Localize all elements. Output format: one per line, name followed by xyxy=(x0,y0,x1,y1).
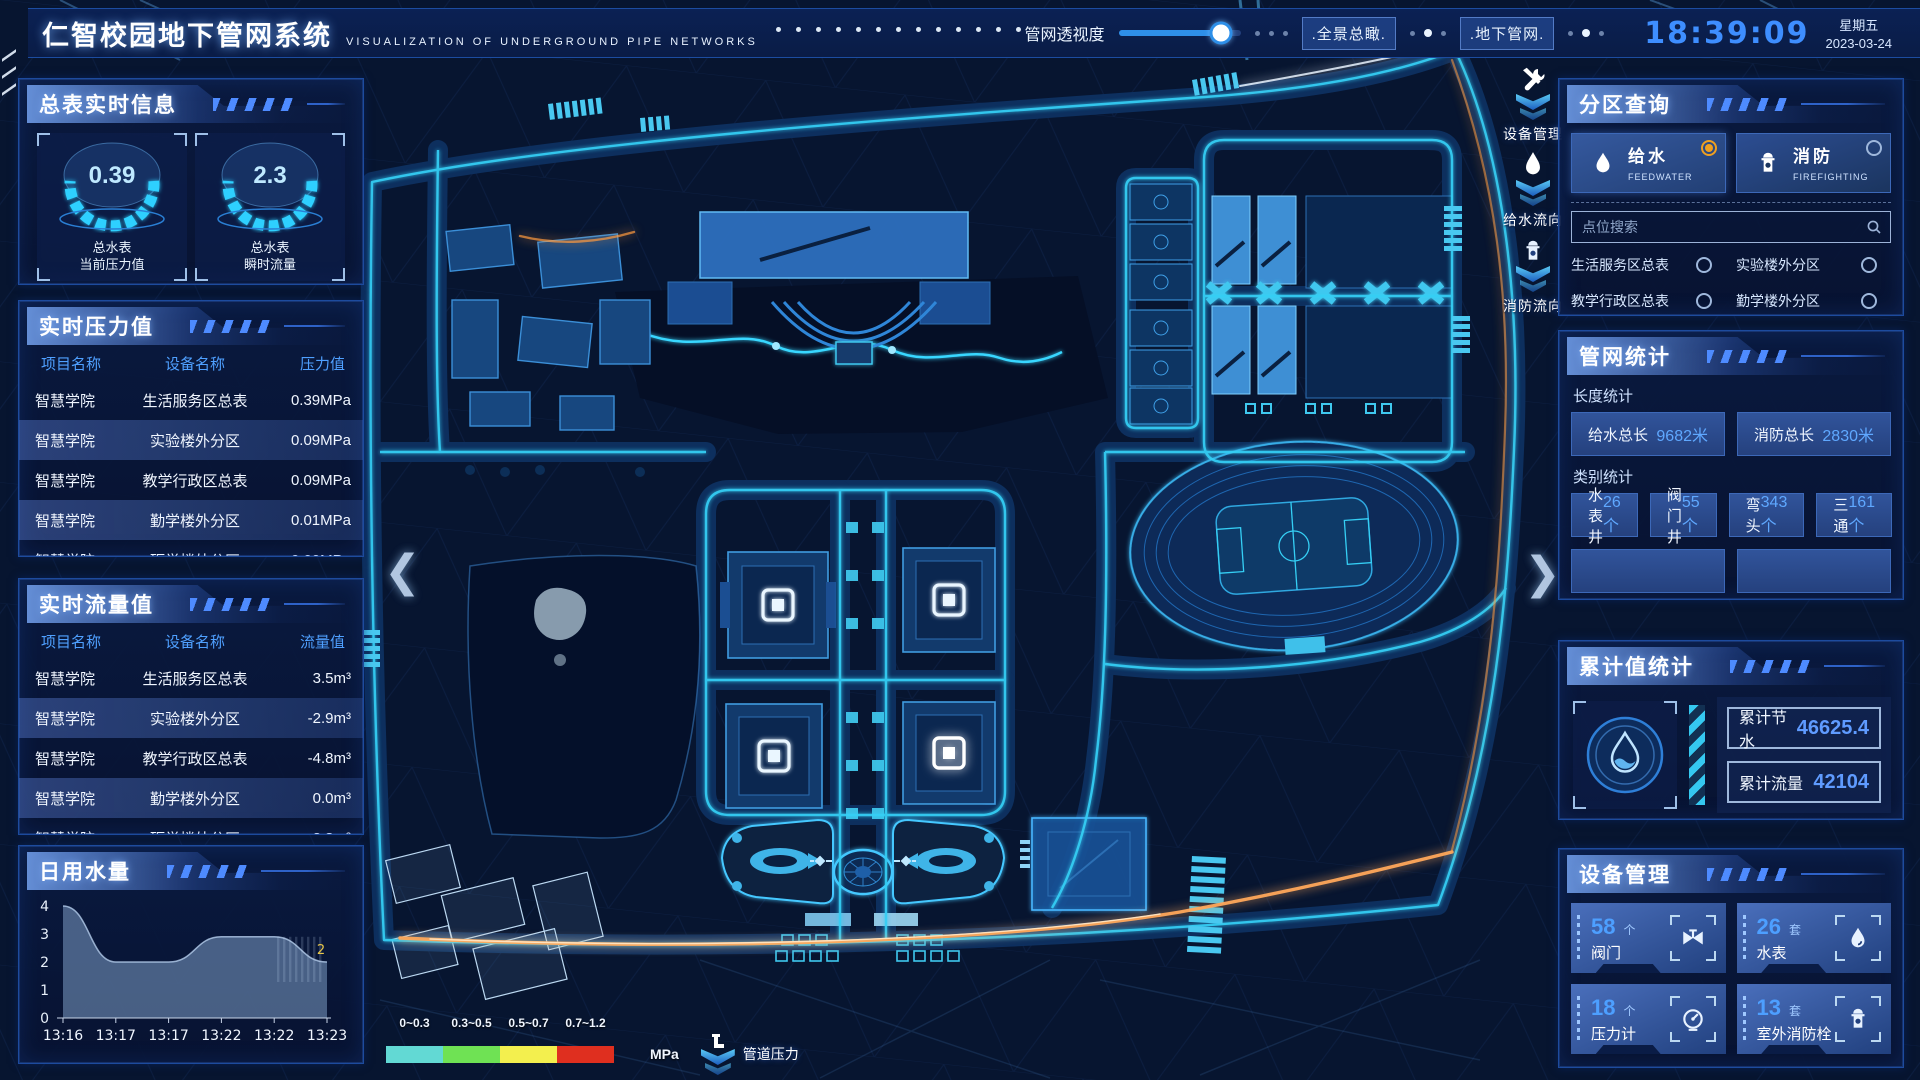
pipe-icon xyxy=(708,1033,728,1051)
realtime-pressure-panel: 实时压力值 项目名称 设备名称 压力值 智慧学院生活服务区总表0.39MPa智慧… xyxy=(18,300,364,557)
svg-text:2: 2 xyxy=(40,955,49,971)
pressure-gauge-icon xyxy=(1670,996,1716,1042)
stripe-divider xyxy=(1689,705,1705,805)
hydrant-icon xyxy=(1516,234,1550,268)
water-meter-icon xyxy=(1835,915,1881,961)
panel-title: 管网统计 xyxy=(1567,341,1671,371)
water-drop-emblem-icon xyxy=(1583,713,1667,797)
table-row[interactable]: 智慧学院实验楼外分区0.09MPa xyxy=(19,420,363,460)
realtime-flow-panel: 实时流量值 项目名称 设备名称 流量值 智慧学院生活服务区总表3.5m³智慧学院… xyxy=(18,578,364,835)
clock-time: 18:39:09 xyxy=(1644,16,1809,51)
legend-unit: MPa xyxy=(650,1046,679,1062)
stat-chip: 水表井26个 xyxy=(1571,493,1638,537)
water-emblem xyxy=(1573,701,1677,809)
svg-text:2.3: 2.3 xyxy=(253,162,286,189)
stat-chip: 三通161个 xyxy=(1816,493,1892,537)
query-option[interactable]: 教学行政区总表 xyxy=(1571,283,1726,316)
title-slashes xyxy=(213,98,299,111)
map-tool-water-drop[interactable]: 给水流向 xyxy=(1503,148,1563,230)
overview-button[interactable]: .全景总瞰. xyxy=(1302,17,1396,50)
gauge-dial: 2.3 xyxy=(195,133,345,233)
stat-chip: 消防总长2830米 xyxy=(1737,412,1891,456)
map-tool-hydrant[interactable]: 消防流向 xyxy=(1503,234,1563,316)
pressure-table-header: 项目名称 设备名称 压力值 xyxy=(19,345,363,380)
mode-radio[interactable] xyxy=(1866,140,1882,156)
slider-knob[interactable] xyxy=(1210,22,1233,45)
search-icon[interactable] xyxy=(1866,219,1882,235)
slider-fill xyxy=(1119,30,1221,36)
panel-title: 实时流量值 xyxy=(27,589,154,619)
page-title: 仁智校园地下管网系统 xyxy=(42,14,332,53)
clock-date: 2023-03-24 xyxy=(1826,36,1893,51)
panel-title: 设备管理 xyxy=(1567,859,1671,889)
tools-icon xyxy=(1516,62,1550,96)
radio-icon[interactable] xyxy=(1696,257,1712,273)
table-row[interactable]: 智慧学院生活服务区总表3.5m³ xyxy=(19,658,363,698)
svg-text:1: 1 xyxy=(40,983,49,999)
gauge-dial: 0.39 xyxy=(37,133,187,233)
table-row[interactable]: 智慧学院生活服务区总表0.39MPa xyxy=(19,380,363,420)
svg-text:13:22: 13:22 xyxy=(254,1028,294,1044)
svg-text:13:17: 13:17 xyxy=(96,1028,136,1044)
valve-icon xyxy=(1670,915,1716,961)
chevron-down-icon xyxy=(701,1049,735,1065)
zone-query-panel: 分区查询 给水FEEDWATER 消防FIREFIGHTING xyxy=(1558,78,1904,316)
lake xyxy=(468,556,700,839)
cumulative-stats-panel: 累计值统计 累计节水46625.4累计流量42104 xyxy=(1558,640,1904,820)
daily-water-panel: 日用水量 4321013:1613:1713:1713:2213:2213:23… xyxy=(18,845,364,1064)
hydrant-icon xyxy=(1835,996,1881,1042)
panel-title: 分区查询 xyxy=(1567,89,1671,119)
table-row[interactable]: 智慧学院砺学楼外分区2.3m³ xyxy=(19,818,363,835)
divider xyxy=(1571,202,1891,203)
panel-title: 总表实时信息 xyxy=(27,89,177,119)
dashboard-root: 仁智校园地下管网系统 VISUALIZATION OF UNDERGROUND … xyxy=(0,0,1920,1080)
legend-label: 管道压力 xyxy=(743,1044,799,1064)
gauge-label: 总水表瞬时流量 xyxy=(195,239,345,273)
flow-table-header: 项目名称 设备名称 流量值 xyxy=(19,623,363,658)
gauge-label: 总水表当前压力值 xyxy=(37,239,187,273)
svg-text:13:22: 13:22 xyxy=(201,1028,241,1044)
radio-icon[interactable] xyxy=(1861,293,1877,309)
page-subtitle: VISUALIZATION OF UNDERGROUND PIPE NETWOR… xyxy=(346,36,758,48)
cumulative-values: 累计节水46625.4累计流量42104 xyxy=(1717,697,1891,813)
flow-table: 智慧学院生活服务区总表3.5m³智慧学院实验楼外分区-2.9m³智慧学院教学行政… xyxy=(19,658,363,835)
svg-text:13:16: 13:16 xyxy=(43,1028,83,1044)
header-bar: 仁智校园地下管网系统 VISUALIZATION OF UNDERGROUND … xyxy=(28,8,1920,58)
firefighting-mode-button[interactable]: 消防FIREFIGHTING xyxy=(1736,133,1891,193)
device-card-室外消防栓[interactable]: 13套室外消防栓 xyxy=(1737,984,1892,1054)
decor-dots xyxy=(1568,29,1604,37)
decor-dots xyxy=(1255,31,1288,36)
stat-chip: 弯头343个 xyxy=(1729,493,1805,537)
cumulative-row: 累计流量42104 xyxy=(1727,761,1881,803)
title-decor-dots xyxy=(776,27,1021,32)
query-option-list: 生活服务区总表实验楼外分区教学行政区总表勤学楼外分区砺学楼外分区宿舍区泵房 xyxy=(1559,243,1903,316)
stat-chip: 给水总长9682米 xyxy=(1571,412,1725,456)
device-card-压力计[interactable]: 18个压力计 xyxy=(1571,984,1726,1054)
panel-title: 实时压力值 xyxy=(27,311,154,341)
daily-water-chart[interactable]: 4321013:1613:1713:1713:2213:2213:232 xyxy=(19,890,349,1062)
hydrant-icon xyxy=(1755,150,1781,176)
svg-text:0.39: 0.39 xyxy=(89,162,136,189)
radio-icon[interactable] xyxy=(1861,257,1877,273)
legend-range-labels: 0~0.30.3~0.50.5~0.70.7~1.2 xyxy=(386,1016,799,1030)
svg-text:13:23: 13:23 xyxy=(307,1028,347,1044)
water-drop-icon xyxy=(1590,150,1616,176)
svg-text:3: 3 xyxy=(40,927,49,943)
table-row[interactable]: 智慧学院教学行政区总表-4.8m³ xyxy=(19,738,363,778)
radio-icon[interactable] xyxy=(1696,293,1712,309)
table-row[interactable]: 智慧学院教学行政区总表0.09MPa xyxy=(19,460,363,500)
svg-text:2: 2 xyxy=(317,943,325,958)
chart-area xyxy=(63,906,327,1018)
main-meter-panel: 总表实时信息 0.39 总水表当前压力值 2.3 xyxy=(18,78,364,285)
mode-radio[interactable] xyxy=(1701,140,1717,156)
length-stats-row: 给水总长9682米消防总长2830米 xyxy=(1559,412,1903,456)
query-option[interactable]: 生活服务区总表 xyxy=(1571,247,1726,283)
pipe-network-stats-panel: 管网统计 长度统计 给水总长9682米消防总长2830米 类别统计 水表井26个… xyxy=(1558,330,1904,600)
pipe-opacity-slider[interactable] xyxy=(1119,30,1241,36)
decor-dots xyxy=(1410,29,1446,37)
svg-text:4: 4 xyxy=(40,899,49,915)
legend-color-bar xyxy=(386,1046,614,1063)
query-option[interactable]: 勤学楼外分区 xyxy=(1736,283,1891,316)
feedwater-mode-button[interactable]: 给水FEEDWATER xyxy=(1571,133,1726,193)
category-stats-row: 水表井26个阀门井55个弯头343个三通161个 xyxy=(1559,493,1903,537)
table-row[interactable]: 智慧学院勤学楼外分区0.01MPa xyxy=(19,500,363,540)
underground-pipes-button[interactable]: .地下管网. xyxy=(1460,17,1554,50)
category-stats-row-clipped xyxy=(1559,549,1903,593)
svg-text:0: 0 xyxy=(40,1011,49,1027)
water-drop-icon xyxy=(1516,148,1550,182)
length-stats-title: 长度统计 xyxy=(1559,375,1903,412)
cumulative-row: 累计节水46625.4 xyxy=(1727,707,1881,749)
query-option[interactable]: 实验楼外分区 xyxy=(1736,247,1891,283)
clock-weekday: 星期五 xyxy=(1839,15,1878,34)
table-row[interactable]: 智慧学院勤学楼外分区0.0m³ xyxy=(19,778,363,818)
pipe-pressure-legend: 0~0.30.3~0.50.5~0.70.7~1.2 MPa 管道压力 xyxy=(386,1016,799,1075)
category-stats-title: 类别统计 xyxy=(1559,456,1903,493)
clock: 18:39:09 星期五 2023-03-24 xyxy=(1644,15,1892,51)
panel-title: 累计值统计 xyxy=(1567,651,1694,681)
pressure-gauge-card[interactable]: 0.39 总水表当前压力值 xyxy=(37,133,187,281)
map-tool-tools[interactable]: 设备管理 xyxy=(1503,62,1563,144)
table-row[interactable]: 智慧学院实验楼外分区-2.9m³ xyxy=(19,698,363,738)
device-card-水表[interactable]: 26套水表 xyxy=(1737,903,1892,973)
search-input[interactable] xyxy=(1580,218,1866,236)
pipe-opacity-label: 管网透视度 xyxy=(1025,21,1105,45)
stat-chip: 阀门井55个 xyxy=(1650,493,1717,537)
flow-gauge-card[interactable]: 2.3 总水表瞬时流量 xyxy=(195,133,345,281)
device-management-panel: 设备管理 58个阀门26套水表18个压力计13套室外消防栓 xyxy=(1558,848,1904,1068)
pressure-table: 智慧学院生活服务区总表0.39MPa智慧学院实验楼外分区0.09MPa智慧学院教… xyxy=(19,380,363,557)
map-pan-right-arrow[interactable]: ❯ xyxy=(1524,548,1561,599)
device-grid: 58个阀门26套水表18个压力计13套室外消防栓 xyxy=(1559,893,1903,1054)
panel-title: 日用水量 xyxy=(27,856,131,886)
point-search-box[interactable] xyxy=(1571,211,1891,243)
device-card-阀门[interactable]: 58个阀门 xyxy=(1571,903,1726,973)
svg-text:13:17: 13:17 xyxy=(148,1028,188,1044)
table-row[interactable]: 智慧学院砺学楼外分区0.00MPa xyxy=(19,540,363,557)
left-edge-ticks xyxy=(2,40,20,160)
map-pan-left-arrow[interactable]: ❮ xyxy=(384,546,421,597)
